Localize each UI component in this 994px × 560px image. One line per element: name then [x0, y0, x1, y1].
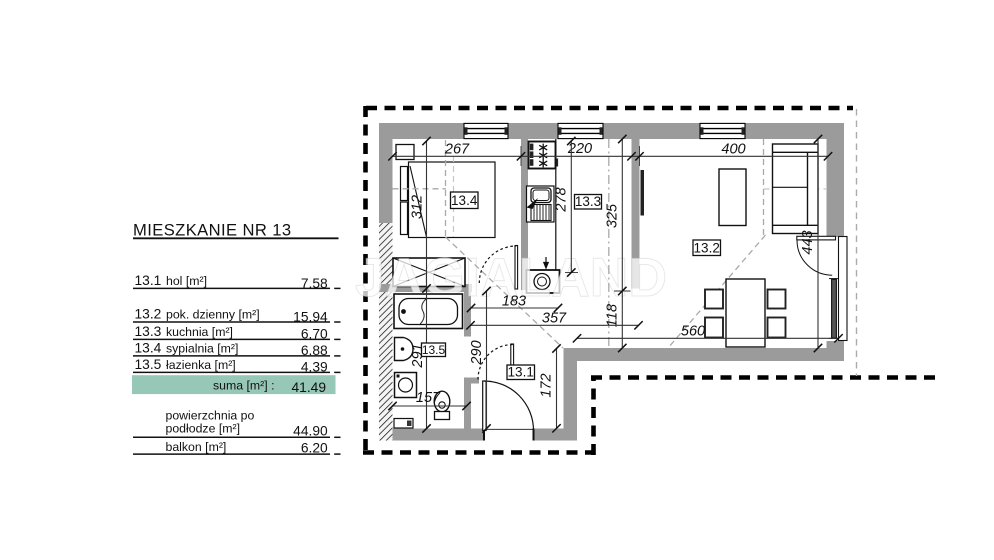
svg-text:357: 357: [542, 311, 567, 327]
svg-text:13.3: 13.3: [135, 324, 162, 339]
svg-text:suma [m²] :: suma [m²] :: [213, 378, 275, 392]
svg-text:balkon [m²]: balkon [m²]: [166, 440, 227, 454]
svg-text:pok. dzienny [m²]: pok. dzienny [m²]: [166, 308, 260, 322]
svg-text:łazienka [m²]: łazienka [m²]: [166, 358, 236, 372]
svg-text:172: 172: [539, 373, 555, 397]
svg-text:44.90: 44.90: [293, 424, 328, 439]
svg-text:267: 267: [444, 142, 470, 158]
svg-text:sypialnia [m²]: sypialnia [m²]: [166, 342, 238, 356]
svg-text:kuchnia [m²]: kuchnia [m²]: [166, 325, 233, 339]
svg-text:118: 118: [605, 304, 621, 327]
svg-text:400: 400: [721, 142, 745, 158]
svg-text:13.4: 13.4: [135, 341, 162, 356]
svg-text:13.1: 13.1: [135, 273, 162, 288]
svg-text:13.4: 13.4: [451, 193, 478, 208]
svg-text:13.1: 13.1: [508, 365, 534, 380]
svg-text:290: 290: [469, 340, 485, 365]
svg-text:220: 220: [567, 141, 592, 157]
svg-text:325: 325: [605, 203, 621, 228]
svg-text:312: 312: [410, 195, 426, 219]
svg-text:443: 443: [800, 230, 816, 254]
svg-text:podłodze [m²]: podłodze [m²]: [166, 422, 241, 436]
svg-text:41.49: 41.49: [291, 380, 326, 395]
svg-text:278: 278: [554, 187, 570, 212]
svg-text:6.20: 6.20: [301, 440, 328, 455]
svg-text:157: 157: [416, 390, 441, 406]
svg-text:560: 560: [681, 324, 705, 340]
svg-text:MIESZKANIE NR 13: MIESZKANIE NR 13: [133, 221, 292, 240]
svg-text:183: 183: [502, 294, 526, 310]
svg-text:hol [m²]: hol [m²]: [166, 274, 207, 288]
svg-text:13.2: 13.2: [694, 240, 720, 255]
svg-text:13.2: 13.2: [135, 307, 162, 322]
svg-text:powierzchnia po: powierzchnia po: [166, 409, 255, 423]
svg-text:13.5: 13.5: [135, 357, 162, 372]
svg-text:13.5: 13.5: [422, 343, 446, 357]
svg-text:13.3: 13.3: [575, 194, 601, 209]
